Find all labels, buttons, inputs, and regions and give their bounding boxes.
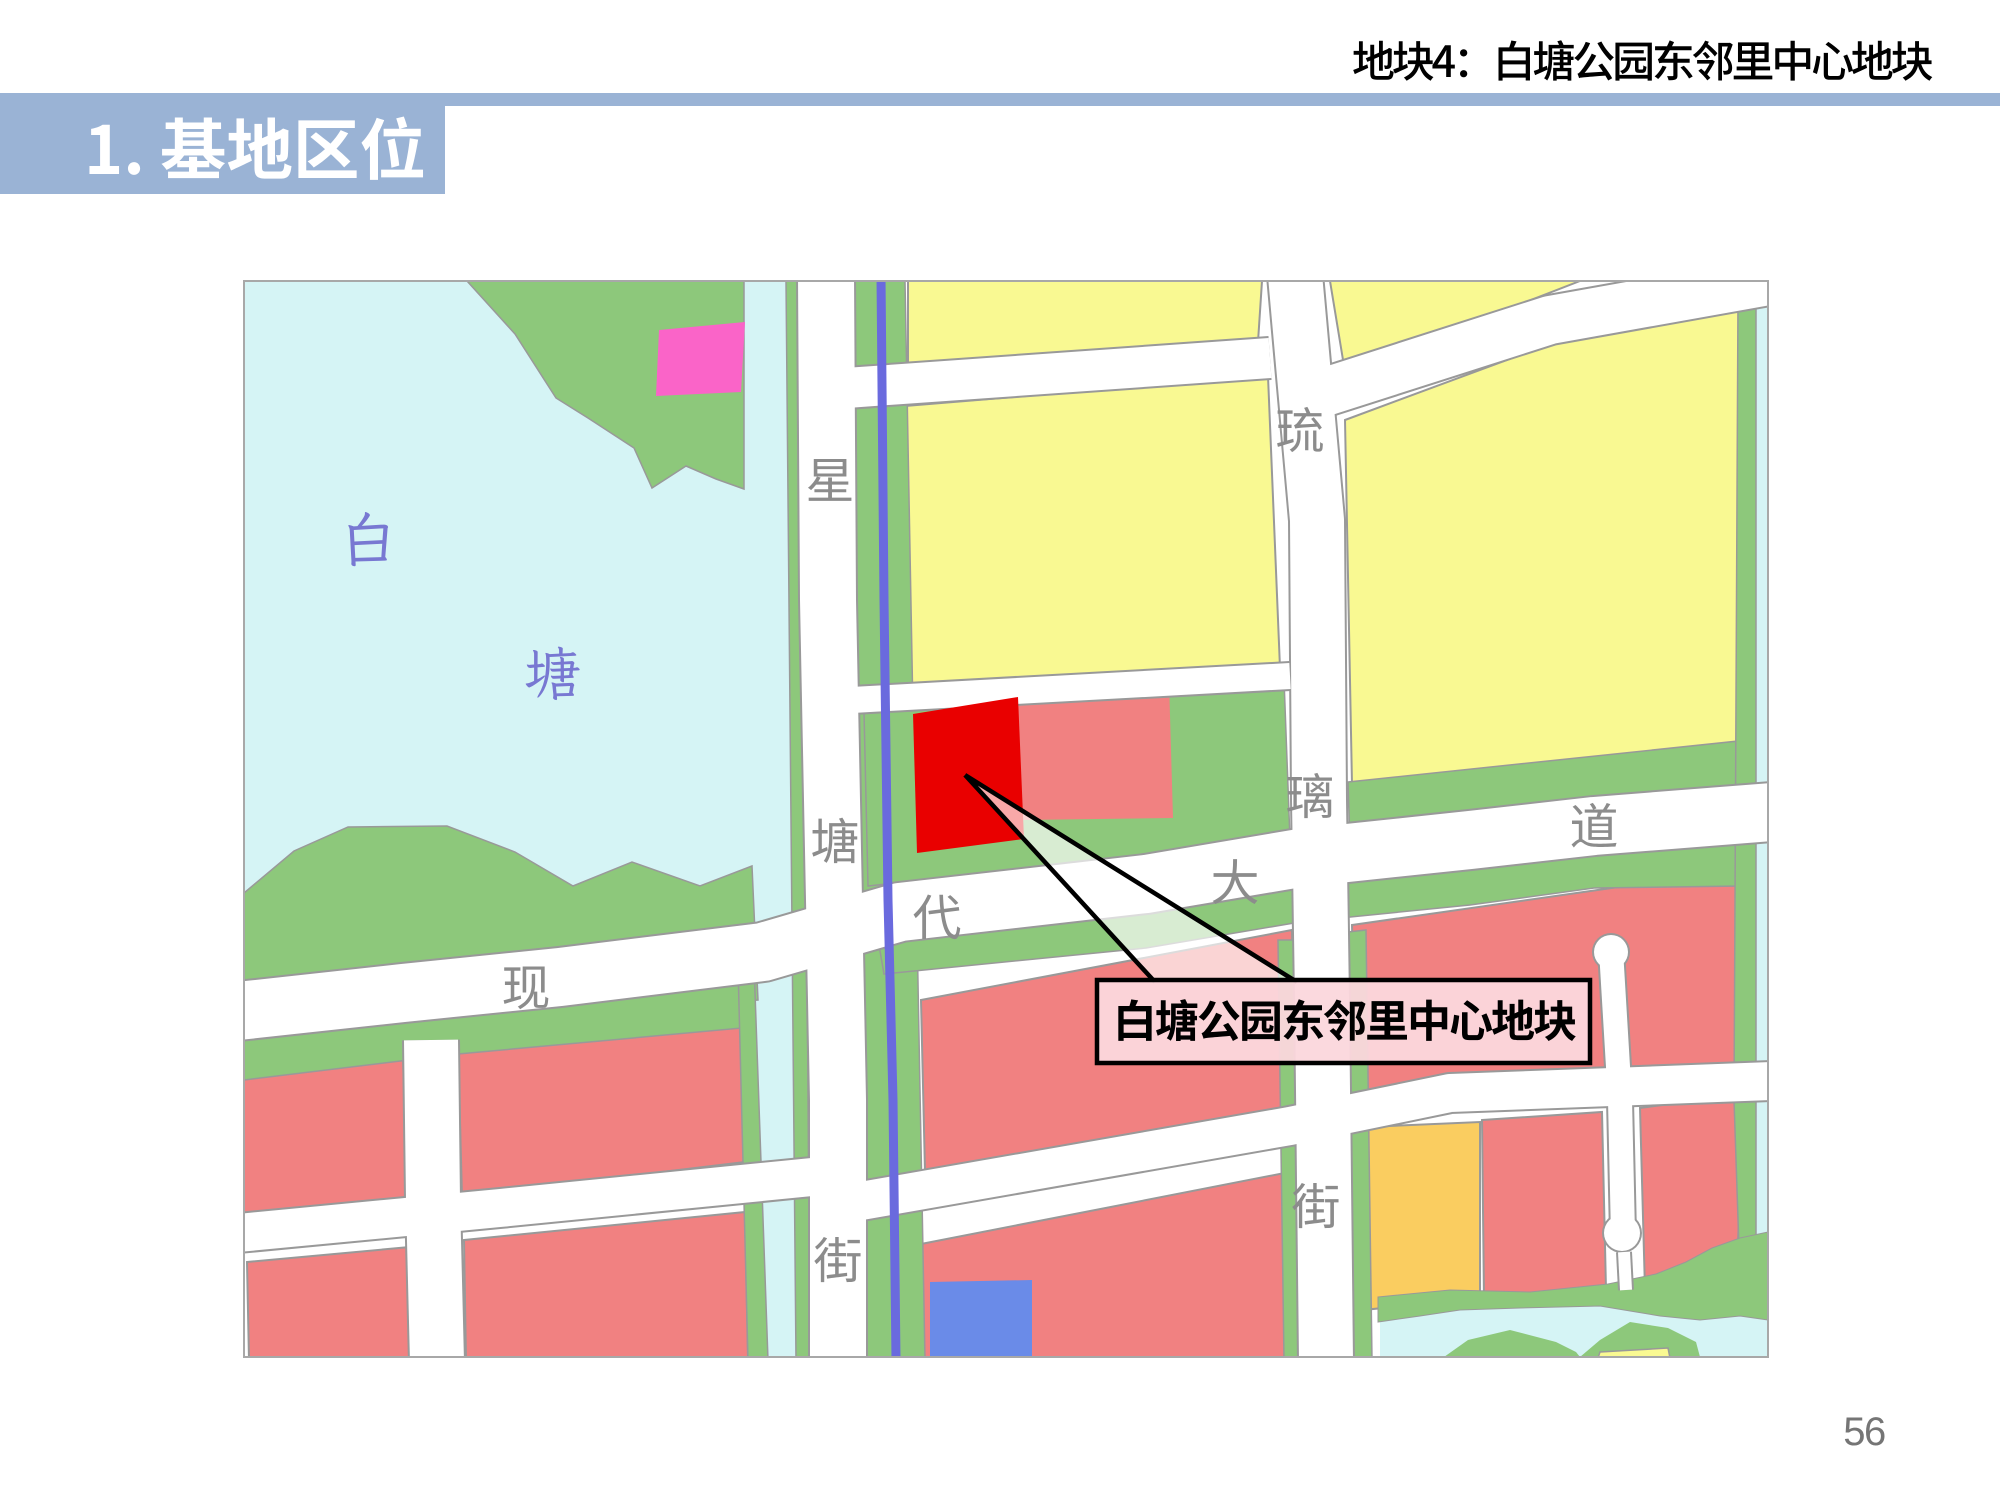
svg-text:56: 56 (1843, 1410, 1885, 1454)
